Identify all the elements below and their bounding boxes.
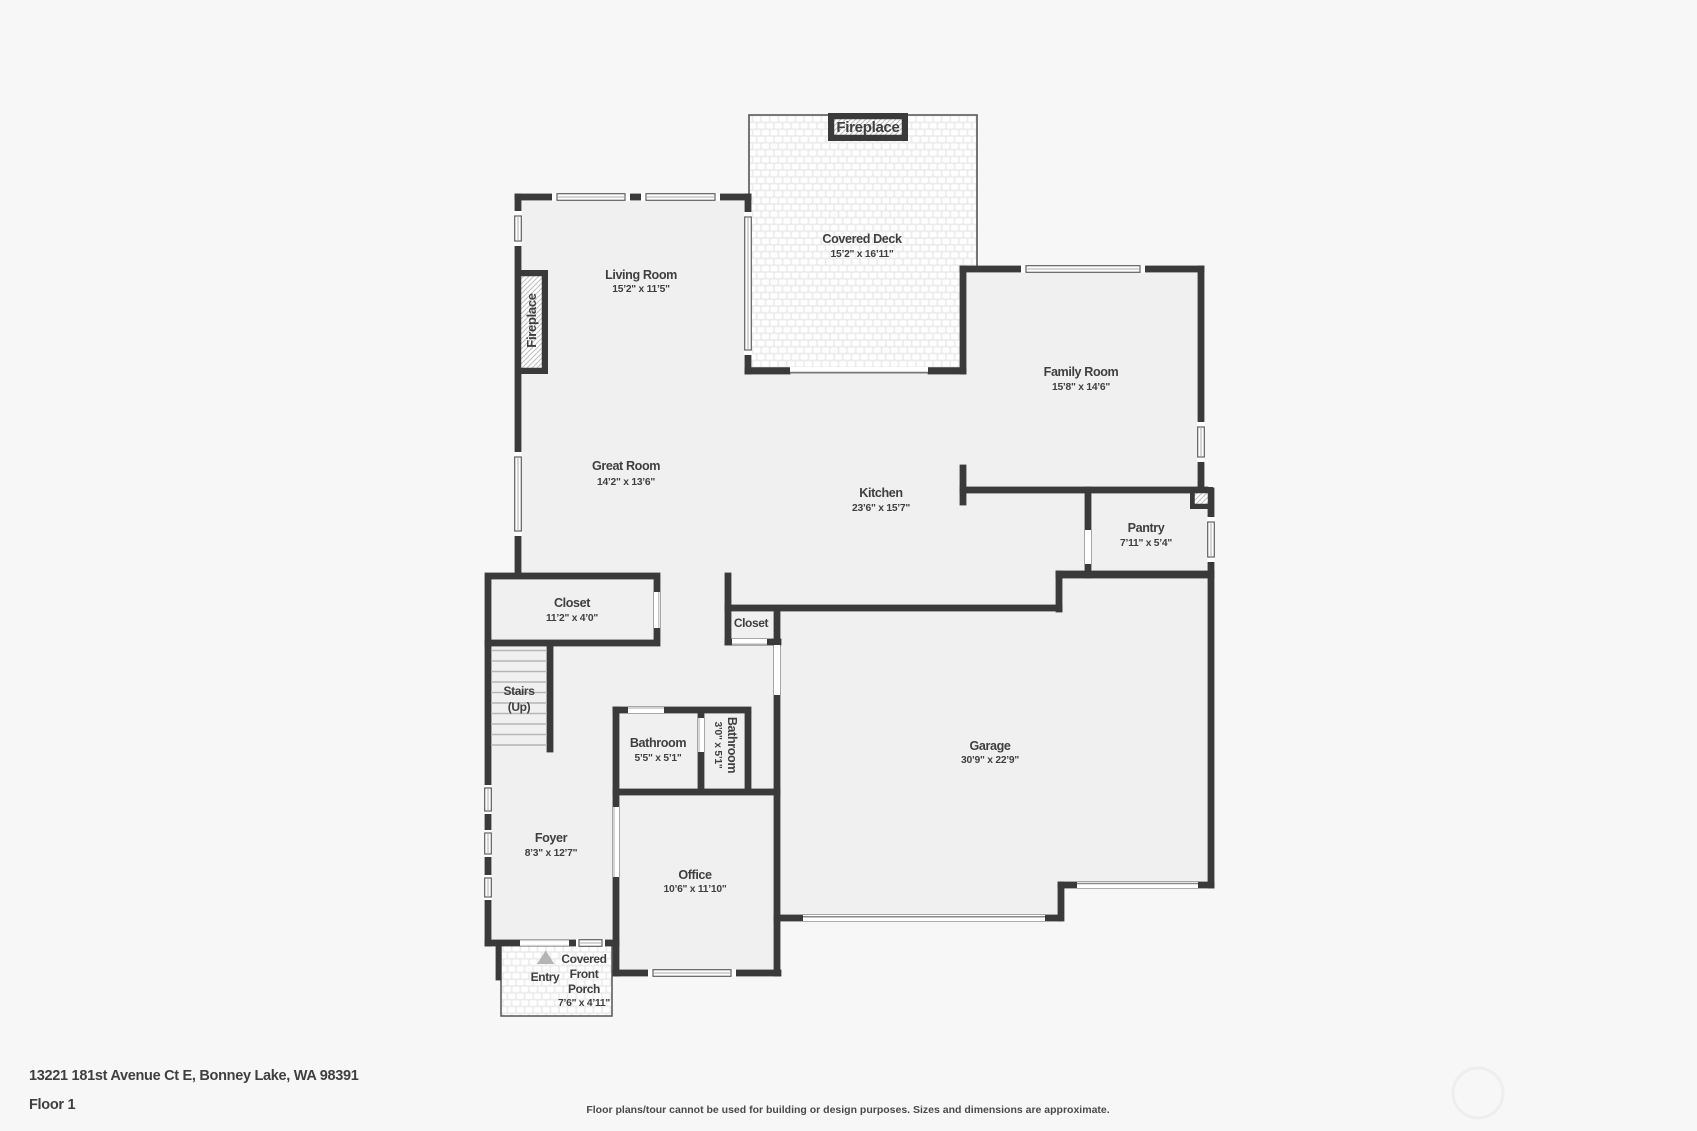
svg-text:Fireplace: Fireplace xyxy=(524,293,539,347)
svg-text:30’9" x 22’9": 30’9" x 22’9" xyxy=(961,755,1019,766)
svg-text:Bathroom: Bathroom xyxy=(630,736,686,750)
svg-text:Family Room: Family Room xyxy=(1044,365,1119,379)
svg-text:Stairs: Stairs xyxy=(504,684,536,698)
svg-text:Front: Front xyxy=(570,967,599,981)
svg-text:Entry: Entry xyxy=(531,970,560,984)
svg-text:Closet: Closet xyxy=(554,596,591,610)
svg-text:23’6" x 15’7": 23’6" x 15’7" xyxy=(852,503,910,514)
svg-text:Pantry: Pantry xyxy=(1128,521,1165,535)
svg-text:Covered Deck: Covered Deck xyxy=(822,232,903,246)
svg-text:Closet: Closet xyxy=(734,616,769,630)
svg-text:Foyer: Foyer xyxy=(535,831,568,845)
svg-text:7’6" x 4’11": 7’6" x 4’11" xyxy=(558,998,610,1009)
svg-text:15’8" x 14’6": 15’8" x 14’6" xyxy=(1052,382,1110,393)
svg-text:3’0" x 5’1": 3’0" x 5’1" xyxy=(712,721,723,768)
svg-text:Porch: Porch xyxy=(568,982,600,996)
svg-text:Floor 1: Floor 1 xyxy=(29,1097,75,1113)
svg-text:Office: Office xyxy=(678,868,712,882)
svg-text:Garage: Garage xyxy=(969,739,1010,753)
svg-text:15’2" x 16’11": 15’2" x 16’11" xyxy=(831,249,894,260)
svg-text:Great Room: Great Room xyxy=(592,459,660,473)
svg-text:Bathroom: Bathroom xyxy=(725,717,739,773)
svg-text:Fireplace: Fireplace xyxy=(836,119,899,136)
svg-text:Covered: Covered xyxy=(561,952,606,966)
svg-text:14’2" x 13’6": 14’2" x 13’6" xyxy=(597,477,655,488)
svg-text:11’2" x 4’0": 11’2" x 4’0" xyxy=(546,613,598,624)
svg-text:Living Room: Living Room xyxy=(605,268,677,282)
svg-text:Floor plans/tour cannot be use: Floor plans/tour cannot be used for buil… xyxy=(586,1104,1109,1116)
svg-text:(Up): (Up) xyxy=(508,700,531,714)
svg-text:7’11" x 5’4": 7’11" x 5’4" xyxy=(1120,538,1172,549)
svg-text:5’5" x 5’1": 5’5" x 5’1" xyxy=(634,753,681,764)
svg-text:13221 181st Avenue Ct E, Bonne: 13221 181st Avenue Ct E, Bonney Lake, WA… xyxy=(29,1068,359,1084)
svg-text:10’6" x 11’10": 10’6" x 11’10" xyxy=(664,884,727,895)
svg-text:8’3" x 12’7": 8’3" x 12’7" xyxy=(525,848,578,859)
svg-text:15’2" x 11’5": 15’2" x 11’5" xyxy=(612,284,670,295)
svg-text:Kitchen: Kitchen xyxy=(859,486,902,500)
